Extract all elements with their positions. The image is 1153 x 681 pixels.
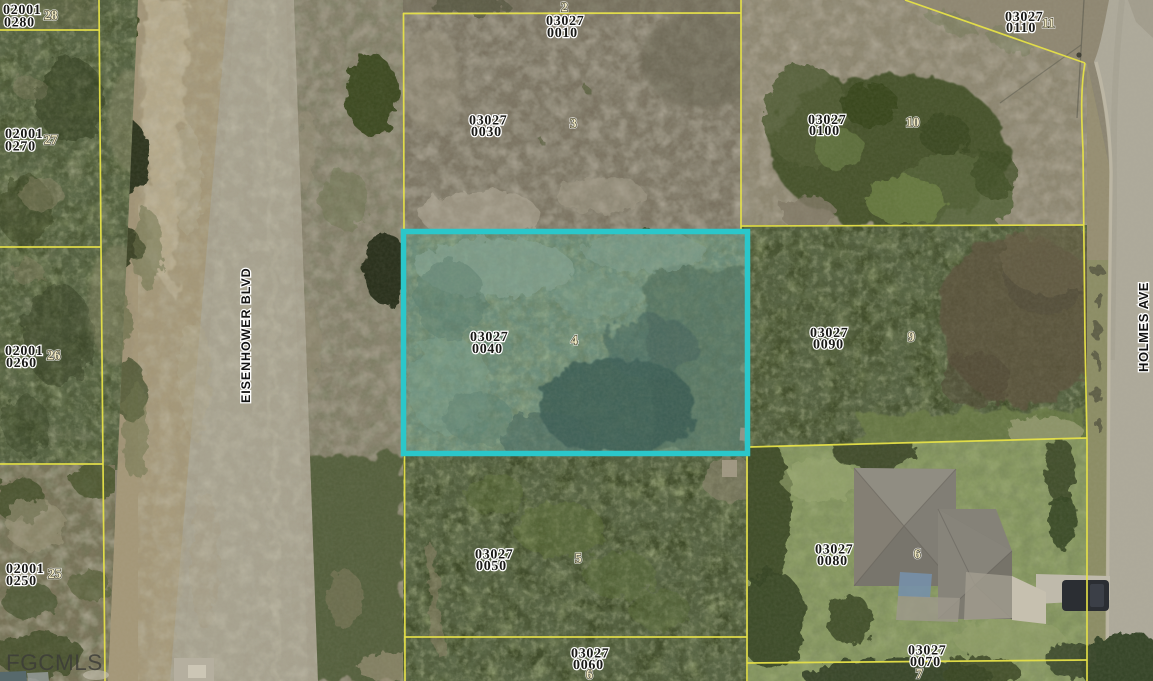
svg-text:11: 11 [1042,16,1055,31]
svg-text:EISENHOWER BLVD: EISENHOWER BLVD [239,268,253,404]
svg-text:6: 6 [914,546,921,561]
svg-text:25: 25 [48,566,62,581]
svg-text:0040: 0040 [472,342,503,357]
svg-text:5: 5 [575,551,582,566]
svg-text:0030: 0030 [471,125,502,140]
svg-text:0110: 0110 [1006,21,1036,36]
svg-text:0090: 0090 [813,338,844,353]
svg-text:27: 27 [44,132,58,147]
svg-text:6: 6 [586,667,593,681]
svg-text:0050: 0050 [476,559,507,574]
svg-text:0260: 0260 [6,356,37,371]
svg-text:0070: 0070 [910,655,941,670]
svg-text:0270: 0270 [5,140,36,155]
svg-text:HOLMES AVE: HOLMES AVE [1136,282,1151,372]
svg-text:0100: 0100 [809,124,840,139]
svg-text:0010: 0010 [547,26,578,41]
svg-text:9: 9 [908,329,915,344]
svg-text:26: 26 [47,348,61,363]
svg-text:0250: 0250 [6,574,37,589]
svg-text:0080: 0080 [817,554,848,569]
svg-text:FGCMLS: FGCMLS [6,650,103,675]
svg-text:7: 7 [916,666,923,681]
svg-text:0280: 0280 [4,16,35,31]
svg-text:10: 10 [906,115,920,130]
svg-text:4: 4 [571,333,578,348]
svg-text:3: 3 [570,116,577,131]
svg-text:2: 2 [561,0,568,15]
svg-text:28: 28 [44,8,58,23]
